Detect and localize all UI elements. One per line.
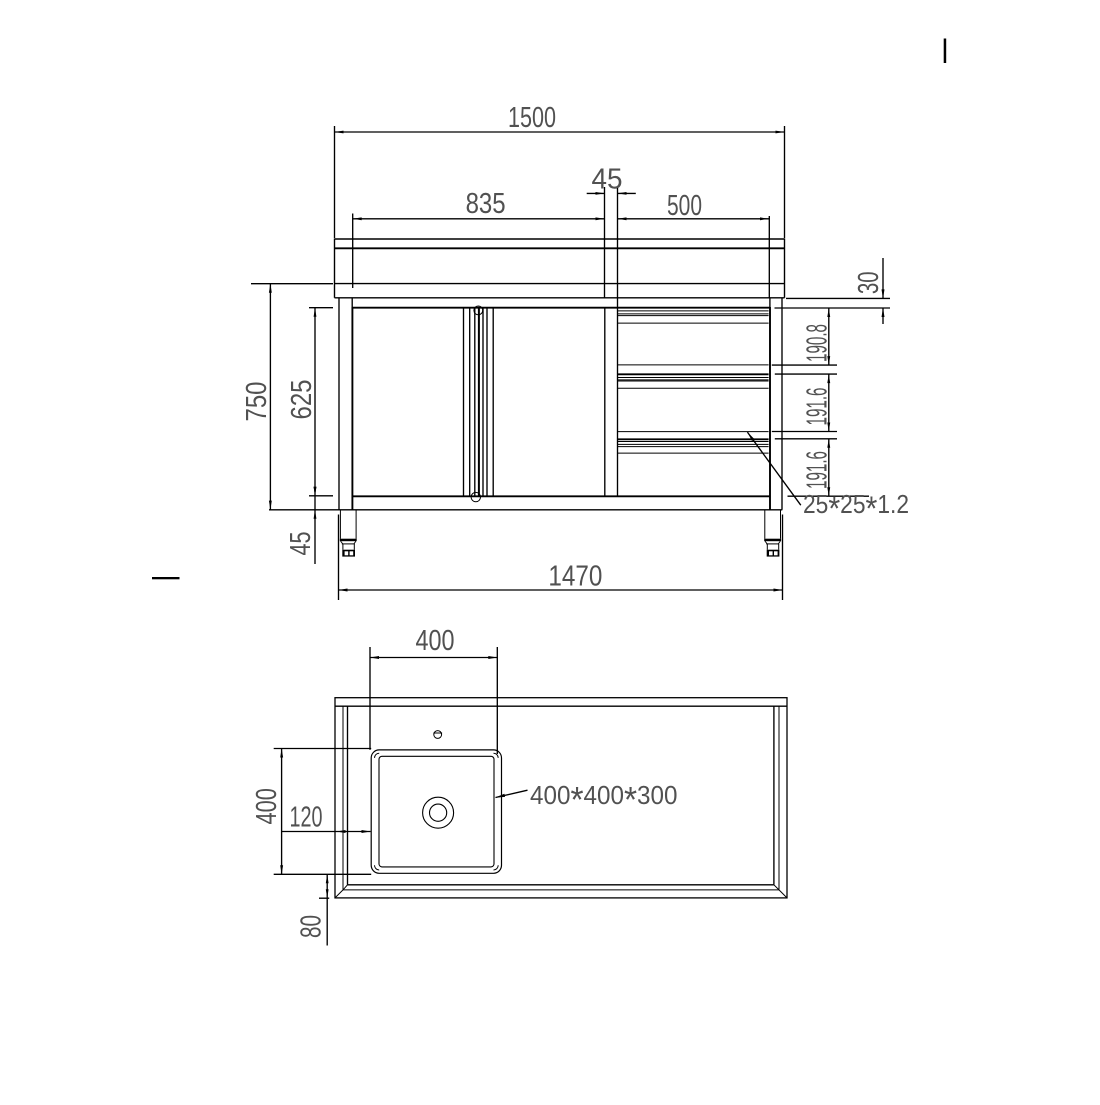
svg-text:190.8: 190.8 — [802, 324, 834, 362]
svg-text:191.6: 191.6 — [802, 388, 834, 426]
svg-text:400: 400 — [251, 788, 283, 825]
svg-text:80: 80 — [296, 915, 328, 938]
svg-text:835: 835 — [466, 188, 506, 220]
svg-text:120: 120 — [290, 802, 323, 834]
svg-text:625: 625 — [286, 380, 318, 420]
svg-text:1470: 1470 — [548, 561, 602, 593]
svg-text:750: 750 — [241, 382, 273, 422]
svg-text:1500: 1500 — [508, 102, 556, 134]
svg-text:191.6: 191.6 — [802, 451, 834, 489]
svg-text:400: 400 — [416, 625, 455, 657]
svg-text:45: 45 — [285, 532, 317, 556]
svg-text:30: 30 — [853, 271, 885, 294]
svg-text:500: 500 — [667, 190, 702, 222]
